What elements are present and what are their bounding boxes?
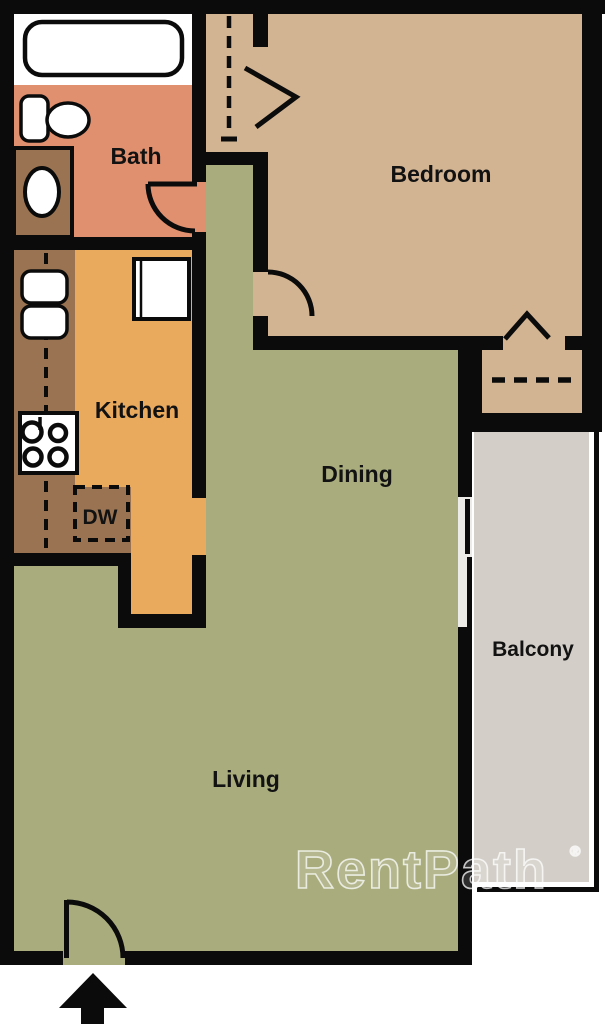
watermark-text: RentPath <box>295 840 548 900</box>
kitchen-label: Kitchen <box>95 397 179 423</box>
living-label: Living <box>212 766 280 792</box>
watermark: RentPath ® <box>295 840 582 900</box>
dishwasher-label: DW <box>83 506 118 529</box>
bath-sink-basin <box>47 103 89 137</box>
floorplan-page: Bath Bedroom Kitchen DW Dining Living Ba… <box>0 0 605 1024</box>
sliding-door-panel-a <box>465 499 470 554</box>
floorplan-drawing: Bath Bedroom Kitchen DW Dining Living Ba… <box>0 0 605 1024</box>
balcony-label: Balcony <box>492 638 574 661</box>
bath-label: Bath <box>110 143 161 169</box>
wall-under-counter <box>14 553 131 566</box>
bath-sink-counter <box>21 96 48 141</box>
wall-living-right <box>458 627 472 965</box>
wall-closet-stub <box>253 14 268 47</box>
balcony-railing-right <box>594 432 599 892</box>
wall-bedroom-left-a <box>253 165 268 272</box>
sliding-door-panel-b <box>467 557 472 627</box>
dining-label: Dining <box>321 461 393 487</box>
hallway-area <box>206 165 253 350</box>
living-below-kitchen-area <box>118 628 206 951</box>
wall-bottom-b <box>125 951 472 965</box>
kitchen-sink-2 <box>22 306 67 338</box>
wall-right-bedroom <box>582 14 602 432</box>
wall-bottom-a <box>0 951 63 965</box>
wall-kitchen-bottom <box>118 614 206 628</box>
wall-closet-nook-bottom <box>198 152 268 165</box>
bedroom-label: Bedroom <box>391 161 492 187</box>
wall-balcony-top <box>472 413 593 432</box>
watermark-registered-icon: ® <box>570 843 582 859</box>
kitchen-sink-1 <box>22 271 67 303</box>
toilet <box>25 168 59 216</box>
living-left-area <box>14 565 118 951</box>
wall-top <box>0 0 605 14</box>
wall-bedroom-bottom-b <box>565 336 590 350</box>
wall-dining-right <box>458 336 472 497</box>
wall-left <box>0 14 14 965</box>
bathtub <box>25 22 182 75</box>
entry-threshold <box>63 951 125 965</box>
wall-kitchen-right-a <box>192 250 206 498</box>
